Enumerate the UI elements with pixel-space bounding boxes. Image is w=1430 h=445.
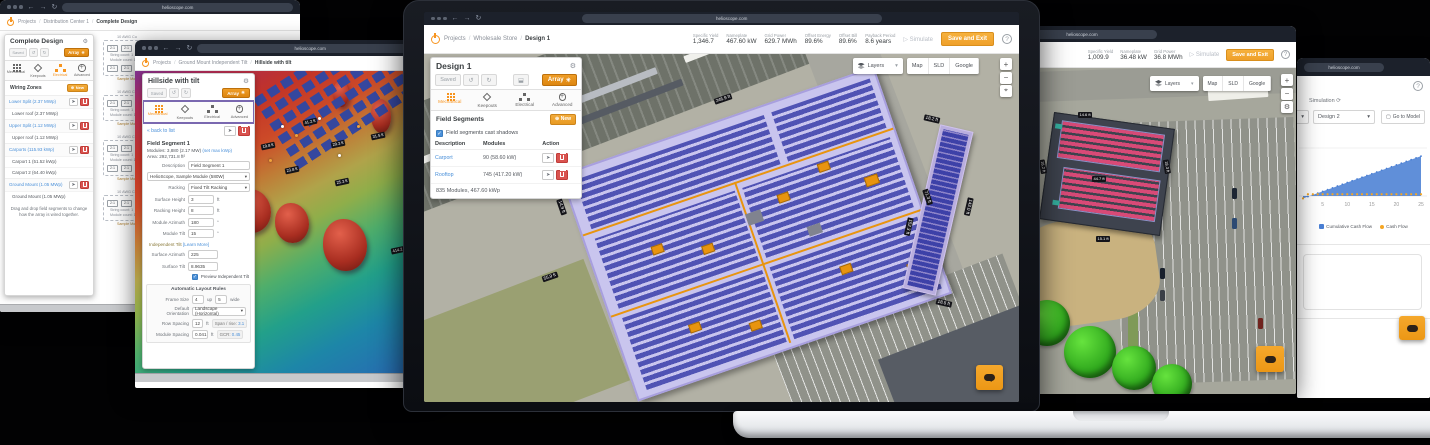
span-rise-readout: Span / rise: 3.1	[212, 319, 248, 328]
url-bar[interactable]: helioscope.com	[582, 14, 882, 23]
simulate-button[interactable]: ▷ Simulate	[903, 36, 933, 43]
zone-child[interactable]: Ground Mount (1.05 MWp)	[5, 191, 93, 202]
plus-icon: ⊕	[555, 116, 559, 122]
zone-link[interactable]: Lower Split (2.37 MWp)	[9, 99, 67, 104]
zone-link[interactable]: Upper Split (1.12 MWp)	[9, 123, 67, 128]
layers-icon	[858, 63, 865, 70]
keepout-icon	[181, 105, 189, 113]
back-icon[interactable]: ←	[452, 15, 459, 22]
svg-text:5: 5	[1321, 202, 1324, 208]
back-icon[interactable]: ←	[28, 4, 35, 11]
breadcrumb: Projects / Ground Mount Independent Tilt…	[153, 60, 291, 66]
breadcrumb-design: Hillside with tilt	[255, 60, 292, 66]
chevron-down-icon: ▾	[1191, 81, 1194, 87]
frame-up-input[interactable]: 4	[192, 295, 204, 304]
laptop-notch	[1073, 411, 1169, 421]
tab-mechanical[interactable]: Mechanical	[431, 90, 469, 110]
browser-chrome: ← → ↻ helioscope.com	[0, 0, 300, 14]
measurement-label: 23.8 ft	[285, 166, 300, 174]
divider	[1297, 244, 1430, 245]
new-field-segment-button[interactable]: ⊕New	[550, 114, 576, 125]
refresh-icon[interactable]: ↻	[52, 4, 58, 11]
laptop-base	[733, 411, 1430, 438]
stat-offset-energy: Offset Energy89.6%	[805, 33, 831, 45]
browser-chrome: helioscope.com	[1297, 58, 1430, 76]
zone-link[interactable]: Ground Mount (1.05 MWp)	[9, 182, 67, 187]
simulation-report: ? Simulation ⟳ ▾ Design 2▾ ▢Go to Model …	[1297, 76, 1430, 398]
plus-circle-icon	[78, 64, 86, 72]
sld-button[interactable]: SLD	[929, 58, 951, 74]
design-select[interactable]: Design 2▾	[1313, 110, 1375, 124]
module-teal	[1055, 123, 1063, 129]
legend-swatch-cumulative	[1319, 224, 1324, 229]
orientation-select[interactable]: Landscape (Horizontal)▾	[192, 307, 246, 316]
module-spacing-input[interactable]: 0.041	[192, 330, 208, 339]
plus-circle-icon	[559, 93, 567, 101]
redo-icon[interactable]: ↻	[40, 48, 49, 57]
helioscope-logo	[142, 60, 149, 67]
url-bar[interactable]: helioscope.com	[197, 44, 423, 53]
laptop-mockup: ← → ↻ helioscope.com Projects / Wholesal…	[403, 0, 1040, 412]
svg-text:25: 25	[1418, 202, 1424, 208]
electrical-tree-icon	[211, 105, 214, 108]
breadcrumb-design: Complete Design	[96, 19, 137, 25]
zoom-in-button[interactable]: +	[1281, 74, 1293, 86]
tab-mechanical[interactable]: Mechanical	[5, 61, 27, 80]
stat-specific-yield: Specific Yield1,346.7	[693, 33, 719, 45]
url-bar[interactable]: helioscope.com	[62, 3, 293, 12]
zoom-out-button[interactable]: −	[1000, 72, 1012, 84]
tab-keepouts[interactable]: Keepouts	[469, 90, 507, 110]
measurement-label: 25.3 ft	[335, 178, 350, 186]
locate-button[interactable]: ➤	[224, 126, 236, 136]
vertex-dot[interactable]	[295, 134, 298, 137]
map-controls: Layers▾ Map SLD Google	[1150, 76, 1271, 91]
gear-icon[interactable]: ⚙	[243, 77, 249, 85]
preview-independent-tilt-checkbox[interactable]: ✓	[192, 274, 198, 280]
design-panel: Design 1 ⚙ Saved ↺ ↻ ⬓ Array☀ Mechanical…	[430, 57, 582, 199]
gear-icon[interactable]: ⚙	[570, 62, 576, 70]
delete-button[interactable]	[80, 181, 89, 189]
delete-button[interactable]	[80, 122, 89, 130]
layers-dropdown[interactable]: Layers▾	[1150, 76, 1199, 91]
tab-advanced[interactable]: Advanced	[71, 61, 93, 80]
helioscope-logo	[431, 35, 440, 44]
browser-window-hillside: ← → ↻ helioscope.com Projects / Ground M…	[135, 40, 430, 388]
measurement-label: 19.8 ft	[261, 142, 276, 150]
saved-button[interactable]: Saved	[9, 48, 27, 57]
module-azimuth-input[interactable]: 180	[188, 218, 214, 227]
window-bottom-bar	[135, 373, 430, 382]
simulate-button[interactable]: ▷ Simulate	[1190, 51, 1220, 58]
measurement-label: 14.6 ft	[1078, 112, 1092, 118]
vertex-dot[interactable]	[269, 159, 272, 162]
locate-button[interactable]: ➤	[542, 153, 554, 163]
chevron-down-icon: ▾	[241, 308, 243, 314]
chat-button[interactable]	[976, 365, 1003, 390]
stat-nameplate: Nameplate467.60 kW	[726, 33, 756, 45]
laptop-screen: ← → ↻ helioscope.com Projects / Wholesal…	[424, 12, 1019, 402]
back-icon[interactable]: ←	[163, 45, 170, 52]
app-header: Projects / Wholesale Store / Design 1 Sp…	[424, 25, 1019, 54]
draw-rectangle-icon[interactable]: ⬓	[513, 74, 529, 86]
forward-icon[interactable]: →	[40, 4, 47, 11]
vertex-dot[interactable]	[281, 125, 284, 128]
car	[1232, 218, 1237, 229]
table-row: Rooftop 745 (417.20 kW) ➤	[431, 166, 581, 183]
independent-tilt-header: Independent Tilt [Learn More]	[147, 241, 250, 248]
delete-button[interactable]	[238, 126, 250, 136]
measurement-label: 16.2 ft	[1039, 159, 1047, 174]
tab-electrical[interactable]: Electrical	[49, 61, 71, 80]
surface-tilt-input[interactable]: 8.9635	[188, 262, 218, 271]
saved-button[interactable]: Saved	[147, 88, 167, 98]
stat-grid-power: Grid Power629.7 MWh	[765, 33, 797, 45]
wiring-zone-item: Carports (115.93 kWp)➤ Carport 1 (51.52 …	[5, 143, 93, 178]
drag-hint-text: Drag and drop field segments to change h…	[5, 202, 93, 223]
wiring-zone-item: Upper Split (1.12 MWp)➤ Upper roof (1.12…	[5, 119, 93, 143]
breadcrumb-project[interactable]: Ground Mount Independent Tilt	[178, 60, 247, 66]
app-header: Specific Yield1,009.9 Nameplate36.48 kW …	[1000, 42, 1296, 68]
panel-tabs: Mechanical Keepouts Electrical Advanced	[143, 101, 254, 123]
vertex-dot[interactable]	[318, 117, 321, 120]
report-card	[1303, 254, 1422, 310]
terrain-hill	[323, 219, 367, 271]
grid-icon	[447, 93, 449, 95]
rooftop-array	[1058, 167, 1161, 222]
chevron-down-icon: ▾	[1301, 114, 1304, 120]
stat-nameplate: Nameplate36.48 kW	[1120, 49, 1147, 61]
breadcrumb-project[interactable]: Distribution Center 1	[43, 19, 89, 25]
zone-child[interactable]: Carport 1 (51.52 kWp)	[5, 156, 93, 167]
module-select[interactable]: HelioScope, Sample Module (580W)▾	[147, 172, 250, 181]
refresh-icon[interactable]: ↻	[476, 15, 482, 22]
array-button[interactable]: Array☀	[222, 88, 250, 98]
plus-circle-icon	[236, 105, 244, 113]
zone-child[interactable]: Lower roof (2.37 MWp)	[5, 108, 93, 119]
layers-icon	[1155, 80, 1162, 87]
tree	[1064, 326, 1116, 378]
building-roof	[1039, 112, 1175, 236]
breadcrumb-project[interactable]: Wholesale Store	[473, 36, 517, 42]
delete-button[interactable]	[556, 153, 568, 163]
delete-button[interactable]	[80, 98, 89, 106]
help-icon[interactable]: ?	[1002, 34, 1012, 44]
array-button[interactable]: Array☀	[64, 48, 89, 57]
map-button[interactable]: Map	[1203, 76, 1224, 91]
trash-icon	[560, 155, 564, 160]
trash-icon	[83, 99, 87, 104]
go-to-model-button[interactable]: ▢Go to Model	[1381, 110, 1425, 124]
panel-tabs: Mechanical Keepouts Electrical Advanced	[5, 60, 93, 81]
new-wiring-zone-button[interactable]: ⊕New	[67, 84, 88, 92]
trash-icon	[83, 123, 87, 128]
browser-chrome: ← → ↻ helioscope.com	[135, 40, 430, 56]
forward-icon[interactable]: →	[175, 45, 182, 52]
svg-text:20: 20	[1394, 202, 1400, 208]
frame-wide-input[interactable]: 5	[215, 295, 227, 304]
window-control-dots[interactable]	[142, 46, 158, 50]
zone-link[interactable]: Carports (115.93 kWp)	[9, 147, 67, 152]
locate-button[interactable]: ➤	[69, 122, 78, 130]
locate-button[interactable]: ➤	[542, 170, 554, 180]
back-to-list-link[interactable]: « back to list	[147, 128, 222, 134]
recenter-icon[interactable]: ⌖	[1000, 85, 1012, 97]
panel-title: Hillside with tilt	[148, 78, 199, 85]
chat-bubble-icon	[984, 374, 995, 381]
stat-offset-bill: Offset Bill89.6%	[839, 33, 857, 45]
measurement-label: 15.1 ft	[1096, 236, 1110, 242]
tab-advanced[interactable]: Advanced	[544, 90, 582, 110]
browser-window-simulation: helioscope.com ? Simulation ⟳ ▾ Design 2…	[1297, 58, 1430, 398]
chat-bubble-icon	[1407, 325, 1418, 332]
trash-icon	[242, 128, 246, 133]
vertex-dot[interactable]	[338, 154, 341, 157]
section-title: Field Segments	[436, 116, 484, 123]
trash-icon	[83, 147, 87, 152]
plus-icon: ⊕	[71, 85, 74, 90]
locate-button[interactable]: ➤	[69, 98, 78, 106]
tab-advanced[interactable]: Advanced	[226, 102, 253, 122]
terrain-hill	[275, 203, 309, 243]
segment-link-rooftop[interactable]: Rooftop	[435, 172, 454, 178]
browser-window-design2: helioscope.com Specific Yield1,009.9 Nam…	[1000, 26, 1296, 394]
rooftop-array	[1057, 120, 1165, 172]
browser-chrome: ← → ↻ helioscope.com	[424, 12, 1019, 25]
chevron-down-icon: ▾	[895, 63, 898, 69]
chart-legend: Cumulative Cash Flow Cash Flow	[1297, 224, 1430, 229]
help-icon[interactable]: ?	[1413, 81, 1423, 91]
segment-title: Field Segment 1	[143, 139, 254, 148]
racking-select[interactable]: Fixed Tilt Racking▾	[188, 183, 250, 192]
simulation-label: Simulation ⟳	[1309, 98, 1341, 104]
save-and-exit-button[interactable]: Save and Exit	[1226, 49, 1274, 61]
learn-more-link[interactable]: [Learn More]	[183, 242, 209, 247]
tab-electrical[interactable]: Electrical	[506, 90, 544, 110]
electrical-tree-icon	[59, 64, 62, 67]
satellite-map[interactable]: 14.6 ft 44.7 ft 16.2 ft 15.1 ft 18.3 ft …	[1000, 68, 1296, 394]
zoom-controls: + − ⚙	[1281, 74, 1293, 113]
chat-button[interactable]	[1256, 346, 1284, 372]
tab-electrical[interactable]: Electrical	[199, 102, 226, 122]
url-bar[interactable]: helioscope.com	[1304, 63, 1384, 72]
row-spacing-input[interactable]: 12	[192, 319, 203, 328]
undo-icon[interactable]: ↺	[169, 88, 179, 98]
model-icon: ▢	[1386, 114, 1391, 120]
window-control-dots[interactable]	[7, 5, 23, 9]
gear-icon[interactable]: ⚙	[83, 38, 88, 45]
delete-button[interactable]	[556, 170, 568, 180]
forward-icon[interactable]: →	[464, 15, 471, 22]
complete-design-panel: Complete Design ⚙ Saved ↺ ↻ Array☀ Mecha…	[4, 34, 94, 296]
surface-azimuth-input[interactable]: 225	[188, 250, 218, 259]
redo-icon[interactable]: ↻	[481, 74, 497, 86]
locate-button[interactable]: ➤	[69, 181, 78, 189]
satellite-map[interactable]: 246.9 ft 71.3 ft 14.9 ft 55.9 ft 18.2 ft…	[424, 54, 1019, 402]
racking-height-input[interactable]: 8	[188, 206, 214, 215]
field-segments-table: Description Modules Action Carport 90 (5…	[431, 139, 581, 184]
breadcrumb-projects[interactable]: Projects	[18, 19, 36, 25]
tab-keepouts[interactable]: Keepouts	[27, 61, 49, 80]
tab-mechanical[interactable]: Mechanical	[144, 102, 171, 122]
zoom-in-button[interactable]: +	[1000, 58, 1012, 70]
electrical-tree-icon	[523, 93, 526, 96]
surface-height-input[interactable]: 3	[188, 195, 214, 204]
undo-icon[interactable]: ↺	[29, 48, 38, 57]
tab-keepouts[interactable]: Keepouts	[171, 102, 198, 122]
description-input[interactable]: Field Segment 1	[188, 161, 250, 170]
panel-title: Complete Design	[10, 38, 63, 45]
tree	[1112, 346, 1156, 390]
saved-button[interactable]: Saved	[435, 74, 461, 86]
legend-swatch-cashflow	[1380, 225, 1384, 229]
breadcrumb-projects[interactable]: Projects	[444, 36, 466, 42]
chat-button[interactable]	[1399, 316, 1425, 340]
app-header: Projects / Ground Mount Independent Tilt…	[135, 56, 430, 71]
gcr-readout: GCR: 0.45	[217, 330, 244, 339]
panel-tabs: Mechanical Keepouts Electrical Advanced	[431, 89, 581, 111]
breadcrumb: Projects / Wholesale Store / Design 1	[444, 36, 550, 42]
redo-icon[interactable]: ↻	[181, 88, 191, 98]
measurement-label: 14.9 ft	[557, 199, 567, 215]
grid-icon	[155, 105, 157, 107]
car	[1232, 188, 1237, 199]
module-tilt-input[interactable]: 15	[188, 229, 214, 238]
kpi-stats: Specific Yield1,346.7 Nameplate467.60 kW…	[693, 32, 1012, 46]
measurement-label: 44.7 ft	[1092, 176, 1106, 182]
measurement-label: 31.5 ft	[371, 132, 386, 140]
chevron-down-icon: ▾	[245, 174, 247, 180]
chevron-down-icon: ▾	[1367, 114, 1370, 120]
undo-icon[interactable]: ↺	[463, 74, 479, 86]
chat-bubble-icon	[1265, 356, 1276, 363]
zoom-out-button[interactable]: −	[1281, 88, 1293, 100]
report-select-partial[interactable]: ▾	[1297, 110, 1309, 124]
refresh-icon[interactable]: ⟳	[1336, 98, 1341, 104]
design-workspace: 41.2 ft 29.3 ft 31.5 ft 23.8 ft 25.3 ft …	[135, 71, 430, 373]
stat-specific-yield: Specific Yield1,009.9	[1088, 49, 1114, 61]
map-controls: Layers▾ Map SLD Google	[853, 58, 979, 74]
chevron-down-icon: ▾	[245, 185, 247, 191]
sld-button[interactable]: SLD	[1223, 76, 1244, 91]
automatic-layout-rules: Automatic Layout Rules Frame Size4up5wid…	[146, 284, 251, 344]
browser-chrome: helioscope.com	[1000, 26, 1296, 42]
keepout-icon	[34, 64, 42, 72]
stat-payback: Payback Period8.6 years	[865, 33, 895, 45]
map-settings-gear-icon[interactable]: ⚙	[1281, 101, 1293, 113]
stat-grid-power: Grid Power36.8 MWh	[1154, 49, 1183, 61]
refresh-icon[interactable]: ↻	[187, 45, 193, 52]
section-title: Wiring Zones	[10, 85, 42, 91]
car	[1160, 268, 1165, 279]
save-and-exit-button[interactable]: Save and Exit	[941, 32, 994, 46]
segment-link-carport[interactable]: Carport	[435, 155, 453, 161]
composite-hero-screens: ← → ↻ helioscope.com Projects / Distribu…	[0, 0, 1430, 445]
grid-icon	[13, 64, 15, 66]
car	[1258, 318, 1263, 329]
trash-icon	[83, 182, 87, 187]
vertex-dot[interactable]	[357, 125, 360, 128]
breadcrumb: Projects / Distribution Center 1 / Compl…	[18, 19, 137, 25]
svg-text:10: 10	[1344, 202, 1350, 208]
module-teal	[1052, 200, 1060, 206]
delete-button[interactable]	[80, 146, 89, 154]
zone-child[interactable]: Carport 2 (64.40 kWp)	[5, 167, 93, 178]
wiring-zone-item: Ground Mount (1.05 MWp)➤ Ground Mount (1…	[5, 178, 93, 202]
google-button[interactable]: Google	[950, 58, 979, 74]
wiring-zone-item: Lower Split (2.37 MWp)➤ Lower roof (2.37…	[5, 95, 93, 119]
field-segment-panel: Hillside with tilt ⚙ Saved ↺ ↻ Array☀ Me…	[142, 73, 255, 369]
window-control-dots[interactable]	[431, 17, 447, 21]
array-button[interactable]: Array☀	[542, 74, 577, 86]
set-max-kwp-link[interactable]: (set max kWp)	[202, 148, 232, 153]
sun-icon: ☀	[81, 50, 85, 55]
svg-text:15: 15	[1369, 202, 1375, 208]
google-button[interactable]: Google	[1244, 76, 1271, 91]
keepout-icon	[483, 93, 491, 101]
breadcrumb-design: Design 1	[525, 36, 550, 42]
sun-icon: ☀	[241, 90, 245, 96]
map-button[interactable]: Map	[907, 58, 929, 74]
measurement-label: 143.0 ft	[964, 197, 973, 216]
cashflow-chart: 510152025	[1299, 140, 1427, 214]
table-row: Carport 90 (58.60 kW) ➤	[431, 149, 581, 166]
breadcrumb-projects[interactable]: Projects	[153, 60, 171, 66]
trash-icon	[560, 172, 564, 177]
cast-shadows-checkbox[interactable]: ✓	[436, 130, 443, 137]
train-cars	[571, 67, 658, 106]
car	[1160, 290, 1165, 301]
modules-total: 835 Modules, 467.60 kWp	[431, 184, 581, 198]
zone-child[interactable]: Upper roof (1.12 MWp)	[5, 132, 93, 143]
measurement-label: 18.2 ft	[924, 114, 940, 123]
zoom-controls: + − ⌖	[1000, 58, 1012, 97]
app-header: Projects / Distribution Center 1 / Compl…	[0, 14, 300, 31]
cast-shadows-label: Field segments cast shadows	[446, 130, 518, 136]
helioscope-logo	[7, 19, 14, 26]
help-icon[interactable]: ?	[1281, 50, 1290, 59]
sun-icon: ☀	[566, 77, 571, 84]
layers-dropdown[interactable]: Layers▾	[853, 58, 903, 74]
locate-button[interactable]: ➤	[69, 146, 78, 154]
panel-title: Design 1	[436, 61, 471, 71]
